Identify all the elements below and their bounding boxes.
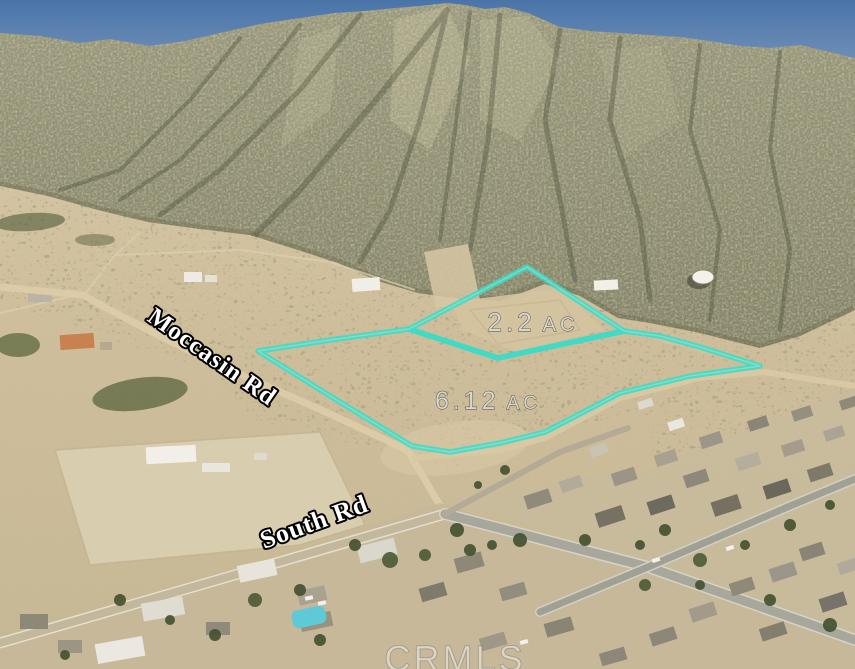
crmls-watermark: CRMLS	[384, 638, 525, 669]
white-building	[146, 445, 197, 465]
aerial-parcel-map: Moccasin Rd South Rd 2.2AC 6.12AC CRMLS	[0, 0, 855, 669]
north-parcel-unit: AC	[543, 314, 579, 336]
aerial-photo: Moccasin Rd South Rd 2.2AC 6.12AC CRMLS	[0, 0, 855, 669]
south-parcel-acres: 6.12	[435, 387, 500, 415]
south-parcel-unit: AC	[507, 393, 541, 414]
north-parcel-acres: 2.2	[488, 307, 536, 337]
